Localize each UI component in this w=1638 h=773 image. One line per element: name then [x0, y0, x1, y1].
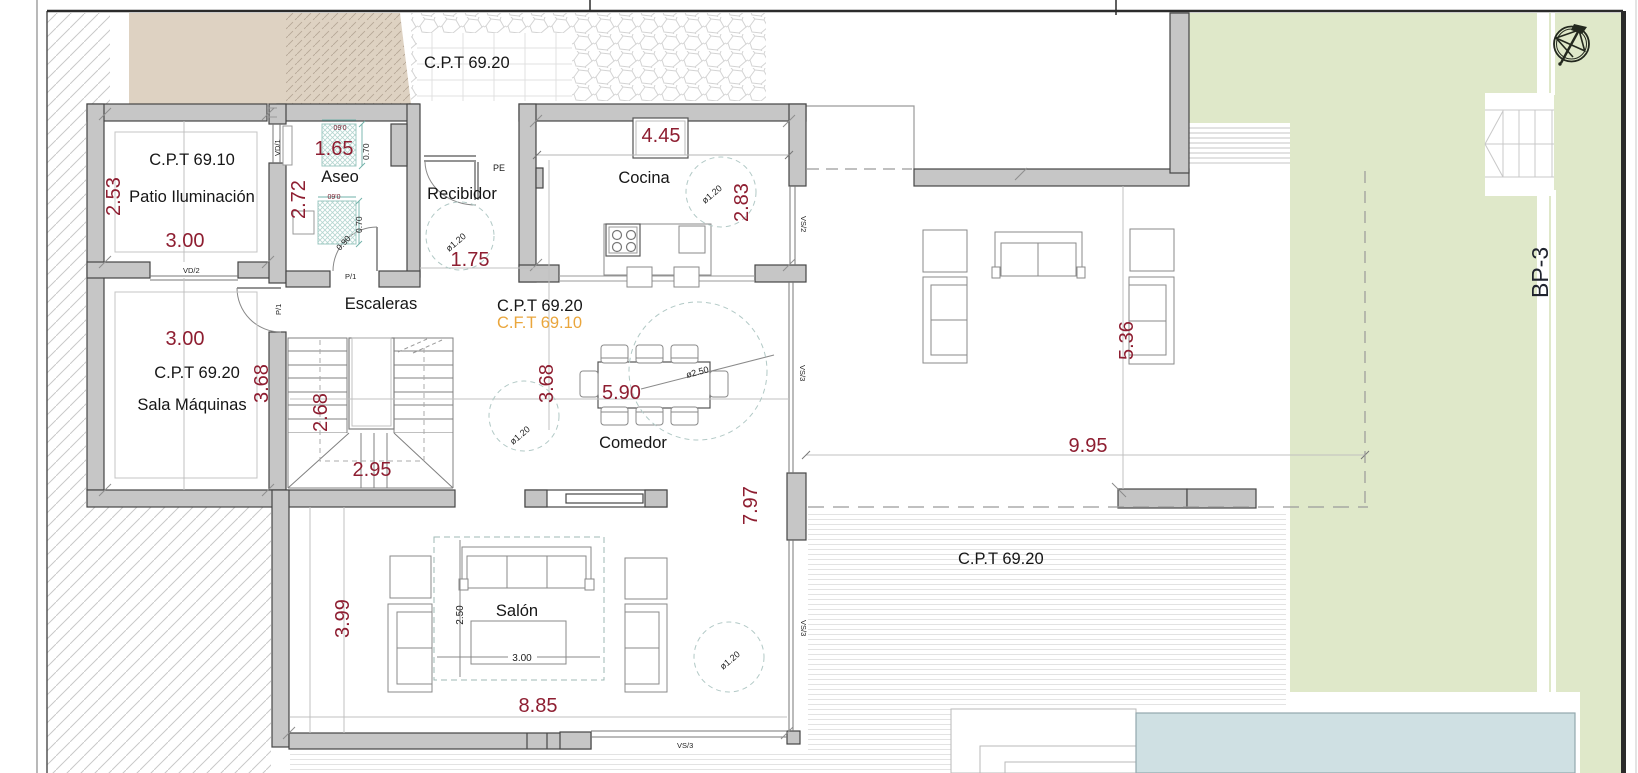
svg-text:C.P.T 69.20: C.P.T 69.20 [424, 54, 510, 72]
svg-text:9.95: 9.95 [1069, 435, 1108, 457]
svg-text:3.00: 3.00 [166, 328, 205, 350]
svg-text:8.85: 8.85 [519, 695, 558, 717]
svg-text:Aseo: Aseo [321, 168, 359, 186]
svg-text:PE: PE [493, 163, 505, 173]
svg-text:VS/3: VS/3 [799, 620, 808, 636]
svg-text:09'0: 09'0 [327, 194, 340, 201]
svg-text:Patio Iluminación: Patio Iluminación [129, 188, 255, 206]
svg-text:Sala Máquinas: Sala Máquinas [137, 396, 246, 414]
svg-text:7.97: 7.97 [740, 486, 762, 525]
svg-text:Comedor: Comedor [599, 434, 667, 452]
svg-text:P/1: P/1 [274, 304, 283, 315]
svg-text:BP-3: BP-3 [1527, 247, 1553, 298]
svg-text:5.36: 5.36 [1116, 321, 1138, 360]
svg-text:Cocina: Cocina [618, 169, 670, 187]
svg-text:09'0: 09'0 [333, 125, 346, 132]
svg-text:VD/1: VD/1 [273, 139, 282, 156]
svg-text:C.P.T 69.20: C.P.T 69.20 [958, 550, 1044, 568]
svg-text:C.P.T 69.10: C.P.T 69.10 [149, 151, 235, 169]
svg-text:Escaleras: Escaleras [345, 295, 417, 313]
svg-text:5.90: 5.90 [602, 382, 641, 404]
svg-text:0.70: 0.70 [354, 216, 364, 233]
svg-text:1.65: 1.65 [315, 138, 354, 160]
svg-text:2.53: 2.53 [103, 177, 125, 216]
svg-text:2.95: 2.95 [353, 459, 392, 481]
svg-text:C.F.T 69.10: C.F.T 69.10 [497, 314, 582, 332]
svg-text:0.70: 0.70 [361, 143, 371, 160]
svg-text:Salón: Salón [496, 602, 538, 620]
svg-text:2.83: 2.83 [731, 183, 753, 222]
svg-text:VS/3: VS/3 [798, 365, 807, 381]
svg-text:3.00: 3.00 [166, 230, 205, 252]
svg-text:4.45: 4.45 [642, 125, 681, 147]
svg-text:C.P.T 69.20: C.P.T 69.20 [154, 364, 240, 382]
svg-text:1.75: 1.75 [451, 249, 490, 271]
svg-text:VD/2: VD/2 [183, 266, 200, 275]
svg-text:P/1: P/1 [345, 272, 356, 281]
svg-text:3.99: 3.99 [332, 599, 354, 638]
svg-text:VS/3: VS/3 [677, 741, 693, 750]
svg-text:3.00: 3.00 [512, 653, 532, 664]
svg-text:Recibidor: Recibidor [427, 185, 497, 203]
svg-text:2.72: 2.72 [288, 180, 310, 219]
svg-text:2.50: 2.50 [455, 605, 466, 625]
svg-text:3.68: 3.68 [536, 364, 558, 403]
svg-text:3.68: 3.68 [251, 364, 273, 403]
svg-text:C.P.T 69.20: C.P.T 69.20 [497, 297, 583, 315]
svg-text:VS/2: VS/2 [799, 216, 808, 232]
svg-text:2.68: 2.68 [310, 393, 332, 432]
